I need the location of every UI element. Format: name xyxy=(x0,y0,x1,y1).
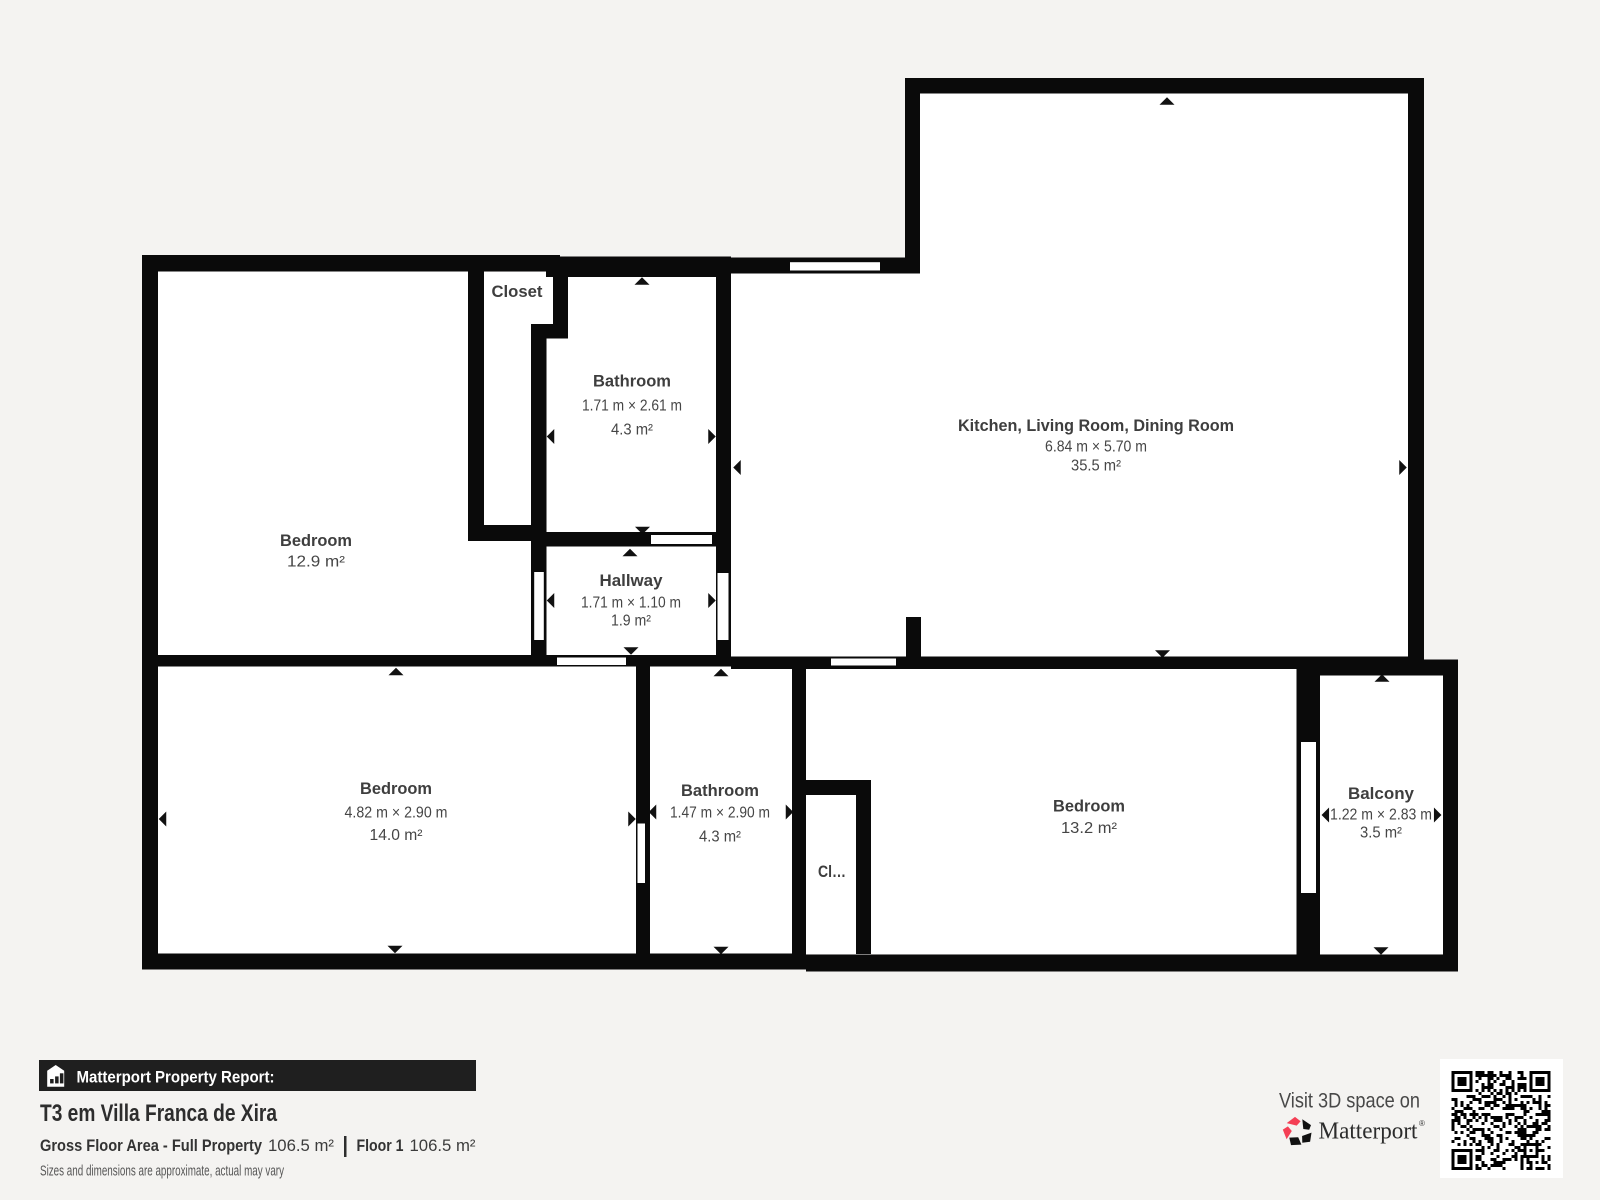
svg-text:Visit 3D space on: Visit 3D space on xyxy=(1279,1090,1420,1113)
svg-text:Matterport Property Report:: Matterport Property Report: xyxy=(77,1068,275,1087)
svg-text:T3 em Villa Franca de Xira: T3 em Villa Franca de Xira xyxy=(40,1100,278,1127)
svg-text:Bathroom: Bathroom xyxy=(593,372,671,391)
svg-text:106.5 m²: 106.5 m² xyxy=(268,1137,335,1155)
svg-text:1.9 m²: 1.9 m² xyxy=(611,613,651,630)
svg-text:106.5 m²: 106.5 m² xyxy=(410,1137,477,1155)
svg-text:1.22 m × 2.83 m: 1.22 m × 2.83 m xyxy=(1330,807,1432,824)
svg-text:Gross Floor Area - Full Proper: Gross Floor Area - Full Property xyxy=(40,1137,263,1155)
svg-text:35.5 m²: 35.5 m² xyxy=(1071,458,1121,475)
svg-text:Sizes and dimensions are appro: Sizes and dimensions are approximate, ac… xyxy=(40,1163,284,1180)
svg-text:®: ® xyxy=(1419,1119,1425,1128)
svg-text:14.0 m²: 14.0 m² xyxy=(370,827,423,844)
svg-text:Kitchen, Living Room, Dining R: Kitchen, Living Room, Dining Room xyxy=(958,416,1234,435)
svg-text:13.2 m²: 13.2 m² xyxy=(1061,820,1117,837)
svg-text:Bedroom: Bedroom xyxy=(360,779,432,798)
svg-text:Bedroom: Bedroom xyxy=(1053,797,1125,816)
svg-text:12.9 m²: 12.9 m² xyxy=(287,554,345,571)
svg-text:3.5 m²: 3.5 m² xyxy=(1360,825,1402,842)
svg-text:1.71 m × 1.10 m: 1.71 m × 1.10 m xyxy=(581,595,681,612)
svg-text:1.47 m × 2.90 m: 1.47 m × 2.90 m xyxy=(670,805,770,822)
svg-text:Balcony: Balcony xyxy=(1348,784,1415,803)
svg-text:Closet: Closet xyxy=(492,282,543,301)
svg-text:6.84 m × 5.70 m: 6.84 m × 5.70 m xyxy=(1045,439,1147,456)
svg-text:Cl…: Cl… xyxy=(818,862,846,881)
svg-text:Hallway: Hallway xyxy=(600,571,664,590)
svg-text:Bathroom: Bathroom xyxy=(681,781,759,800)
svg-text:4.3 m²: 4.3 m² xyxy=(699,829,741,846)
svg-text:Floor 1: Floor 1 xyxy=(357,1137,404,1155)
svg-text:4.3 m²: 4.3 m² xyxy=(611,422,653,439)
svg-text:1.71 m × 2.61 m: 1.71 m × 2.61 m xyxy=(582,398,682,415)
svg-text:4.82 m × 2.90 m: 4.82 m × 2.90 m xyxy=(345,805,448,822)
svg-text:Matterport: Matterport xyxy=(1319,1119,1418,1145)
svg-text:Bedroom: Bedroom xyxy=(280,531,352,550)
